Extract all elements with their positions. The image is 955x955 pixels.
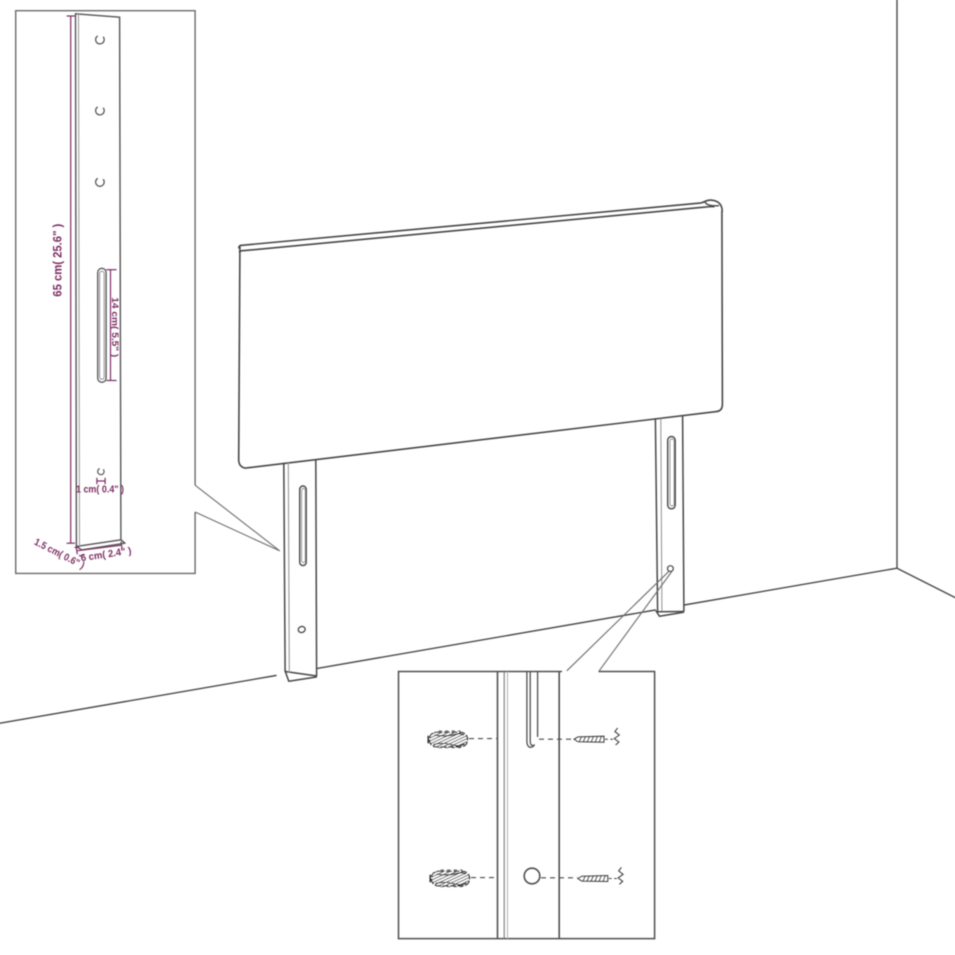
svg-text:1 cm( 0.4" ): 1 cm( 0.4" ) xyxy=(76,485,124,496)
svg-text:65 cm( 25.6" ): 65 cm( 25.6" ) xyxy=(52,224,64,297)
svg-text:14 cm( 5.5" ): 14 cm( 5.5" ) xyxy=(109,297,120,357)
